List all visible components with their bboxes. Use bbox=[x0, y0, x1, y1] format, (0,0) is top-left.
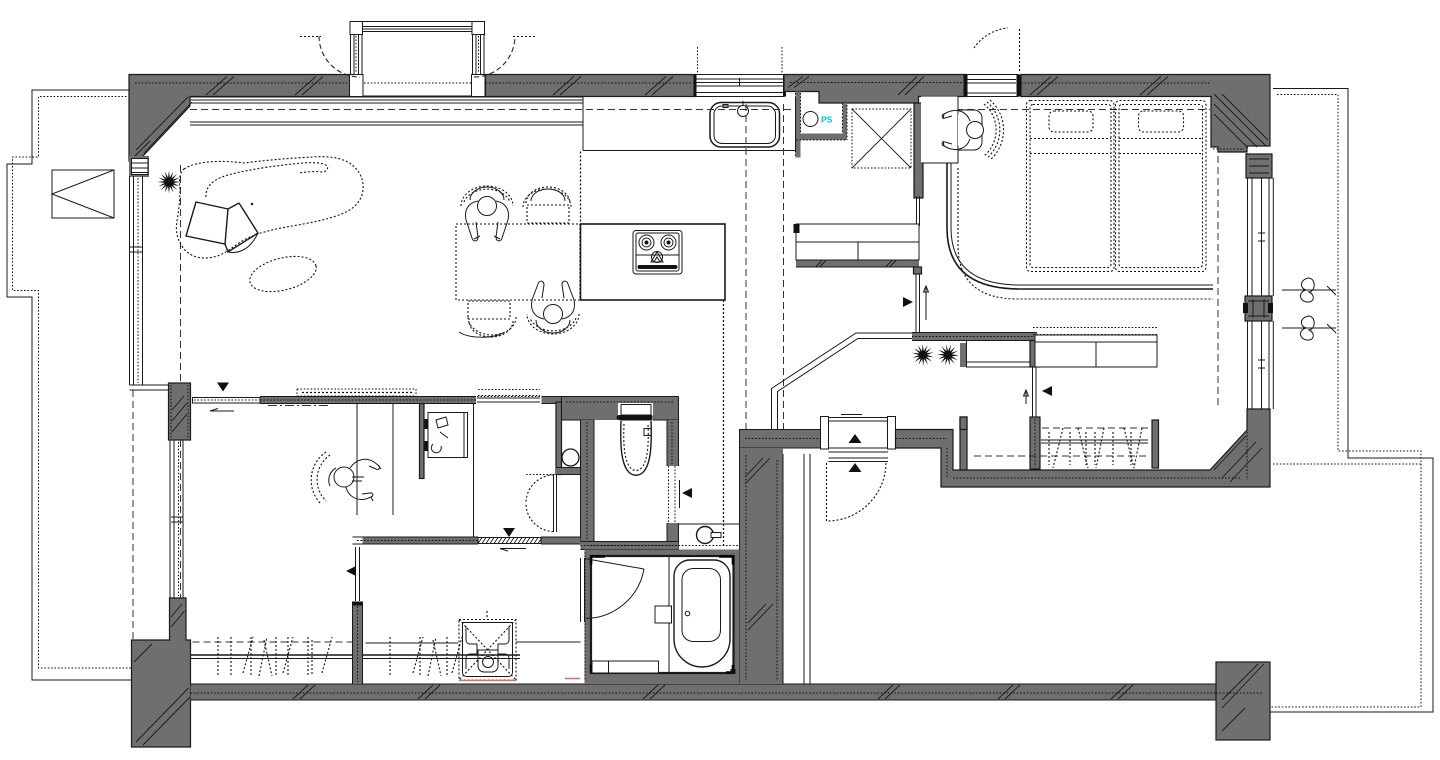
svg-text:PS: PS bbox=[821, 115, 833, 125]
